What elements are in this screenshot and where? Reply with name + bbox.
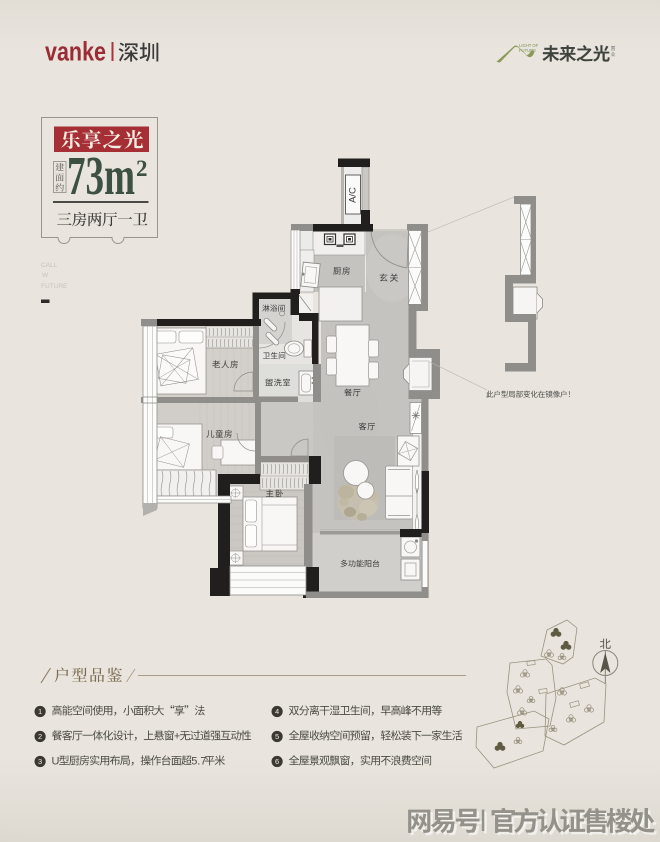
svg-text:A/C: A/C [348,187,359,203]
svg-text:4: 4 [275,707,279,716]
svg-text:5: 5 [275,732,279,741]
svg-text:6: 6 [275,757,279,766]
svg-text:2: 2 [136,156,148,181]
svg-text:U: U [52,756,60,768]
svg-text:+: + [174,731,180,743]
svg-text:W: W [42,272,49,279]
svg-text:1: 1 [38,707,42,716]
svg-text:2: 2 [38,732,42,741]
svg-text:FUTURE: FUTURE [41,283,68,290]
svg-text:FUTURE: FUTURE [519,48,536,53]
svg-text:CALL: CALL [41,262,58,269]
svg-text:73m: 73m [67,145,135,206]
svg-text:5.7: 5.7 [191,756,206,768]
svg-text:vanke: vanke [45,37,106,67]
svg-text:3: 3 [38,757,42,766]
